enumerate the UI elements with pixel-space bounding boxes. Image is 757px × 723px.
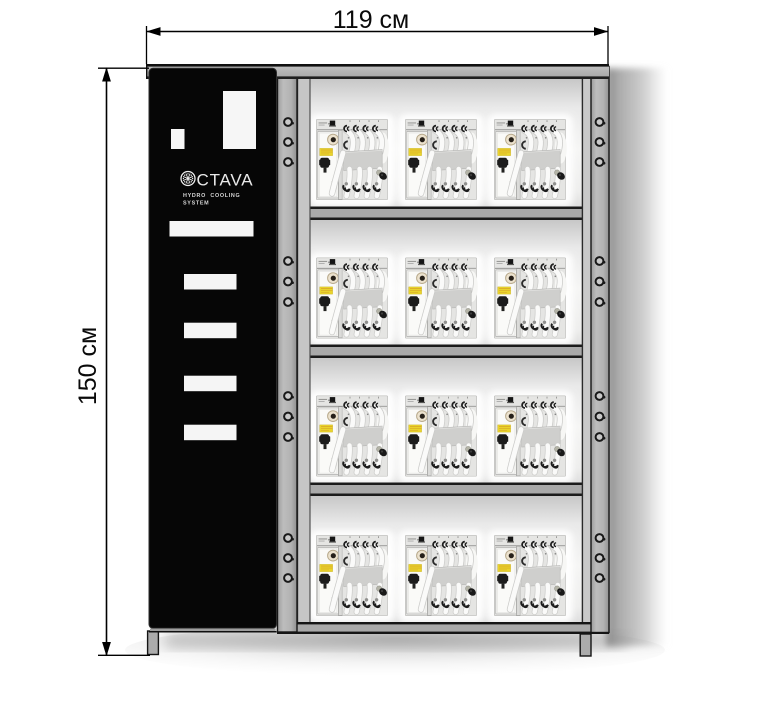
svg-text:HYDRO COOLING: HYDRO COOLING — [183, 193, 240, 199]
svg-text:CTAVA: CTAVA — [197, 171, 254, 190]
svg-text:150 см: 150 см — [74, 327, 102, 405]
svg-text:SYSTEM: SYSTEM — [183, 201, 209, 207]
svg-text:119 см: 119 см — [333, 6, 410, 34]
